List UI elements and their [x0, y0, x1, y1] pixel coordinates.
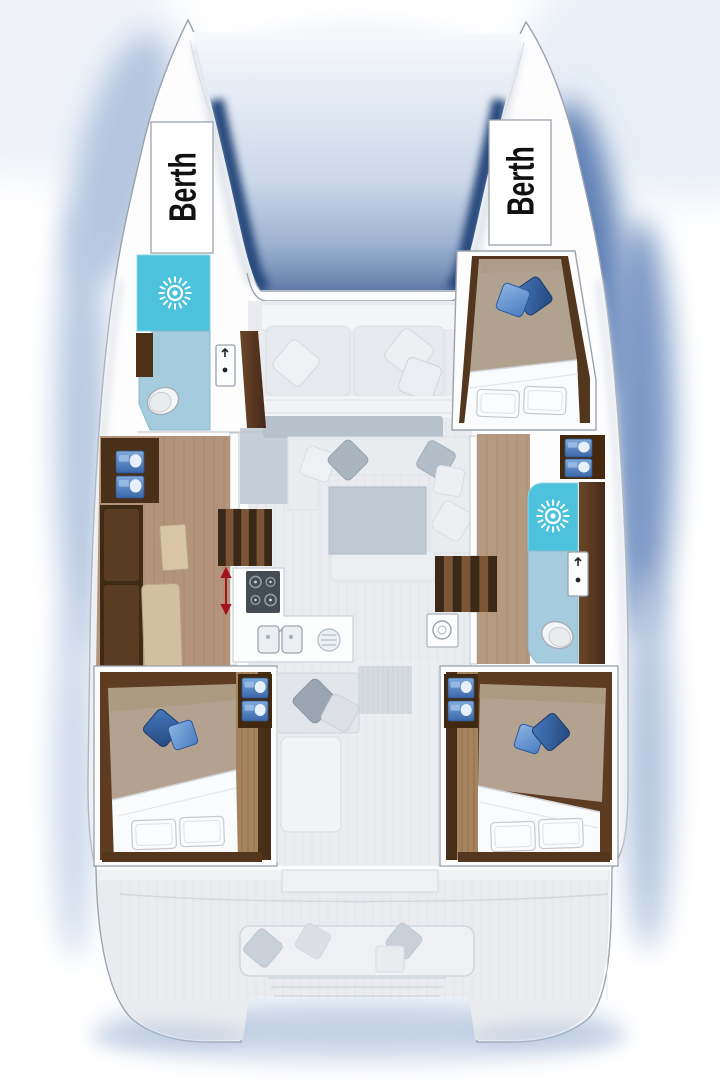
svg-text:Berth: Berth [499, 146, 542, 215]
svg-text:Berth: Berth [161, 152, 204, 221]
